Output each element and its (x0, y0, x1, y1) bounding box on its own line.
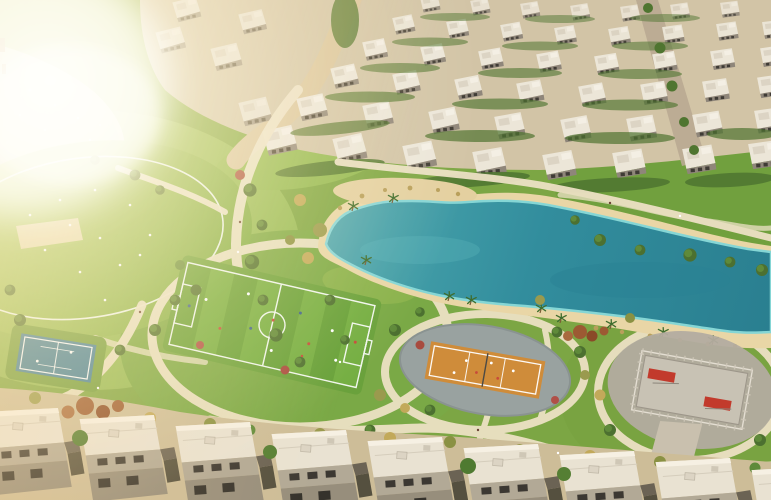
shore-marker (0, 38, 5, 52)
aerial-community-render (0, 0, 771, 500)
shore-marker (2, 64, 6, 74)
render-canvas (0, 0, 771, 500)
